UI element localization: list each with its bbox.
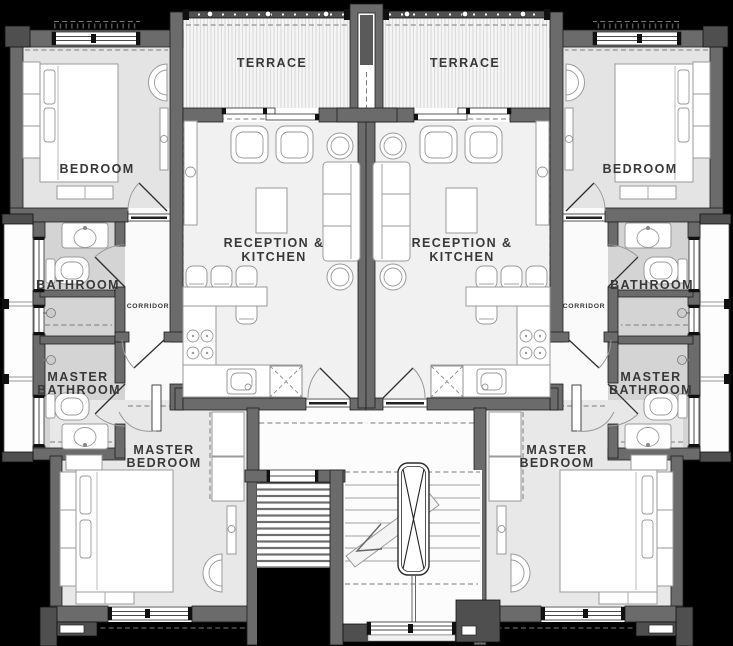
label-master-bathroom-right-line2: BATHROOM: [609, 383, 693, 397]
label-master-bathroom-left-line2: BATHROOM: [37, 383, 121, 397]
stair-void: [257, 568, 330, 646]
window-icon: [267, 470, 318, 482]
label-reception-right-line1: RECEPTION &: [412, 236, 513, 250]
window-icon: [367, 622, 456, 641]
floor-plan: TERRACE TERRACE BEDROOM BEDROOM RECEPTIO…: [0, 0, 733, 646]
label-master-bedroom-right-line2: BEDROOM: [519, 456, 594, 470]
label-master-bedroom-left-line2: BEDROOM: [126, 456, 201, 470]
label-reception-right-line2: KITCHEN: [429, 250, 494, 264]
label-bedroom-left: BEDROOM: [59, 162, 134, 176]
label-bathroom-left: BATHROOM: [36, 278, 120, 292]
label-reception-left-line1: RECEPTION &: [224, 236, 325, 250]
label-master-bathroom-left-line1: MASTER: [47, 370, 108, 384]
label-master-bathroom-right-line1: MASTER: [620, 370, 681, 384]
staircase: [245, 463, 500, 646]
label-reception-left-line2: KITCHEN: [241, 250, 306, 264]
elevator-shaft-icon: [398, 463, 429, 575]
label-corridor-right: CORRIDOR: [563, 303, 606, 310]
floor-plan-drawing: TERRACE TERRACE BEDROOM BEDROOM RECEPTIO…: [0, 0, 733, 646]
label-corridor-left: CORRIDOR: [127, 303, 170, 310]
stair-flight-hatched: [257, 483, 330, 568]
label-bedroom-right: BEDROOM: [602, 162, 677, 176]
label-terrace-right: TERRACE: [430, 56, 500, 70]
label-master-bedroom-right-line1: MASTER: [526, 443, 587, 457]
label-master-bedroom-left-line1: MASTER: [133, 443, 194, 457]
label-terrace-left: TERRACE: [237, 56, 307, 70]
label-bathroom-right: BATHROOM: [610, 278, 694, 292]
